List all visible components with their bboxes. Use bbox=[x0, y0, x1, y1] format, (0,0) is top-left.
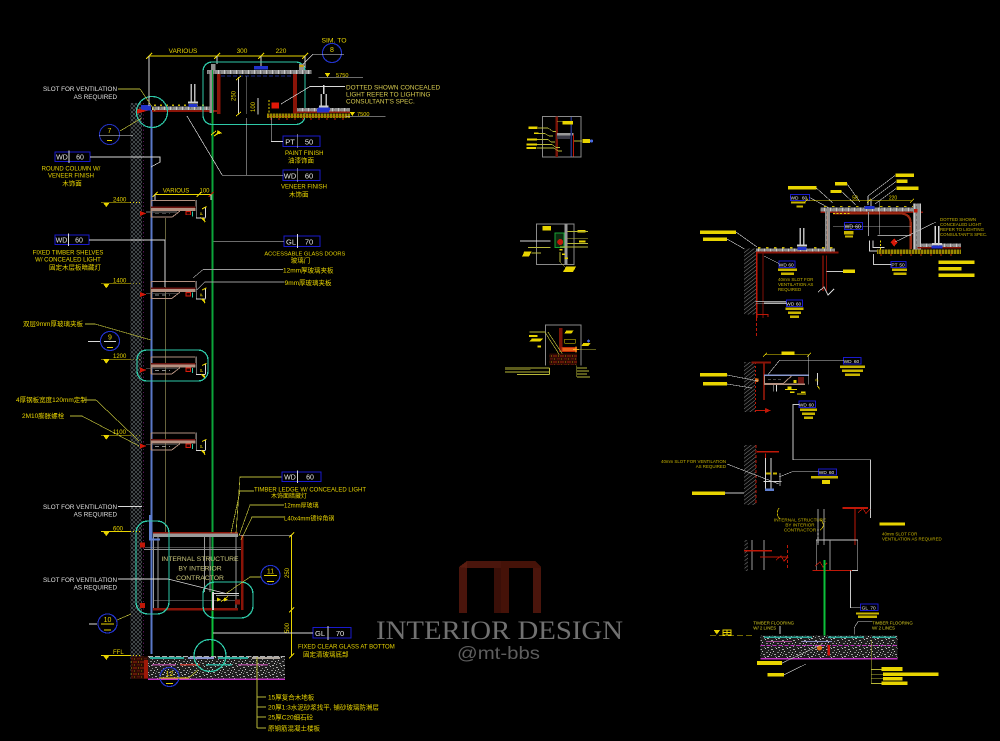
svg-text:70: 70 bbox=[336, 629, 344, 638]
svg-text:VENEER FINISH: VENEER FINISH bbox=[48, 174, 94, 180]
svg-text:220: 220 bbox=[276, 48, 287, 55]
svg-text:W/ 2 LINES: W/ 2 LINES bbox=[872, 626, 895, 631]
svg-text:WD: WD bbox=[284, 475, 296, 482]
svg-text:P: P bbox=[815, 379, 820, 382]
svg-text:木饰面: 木饰面 bbox=[62, 179, 82, 188]
svg-text:60: 60 bbox=[829, 470, 835, 476]
svg-text:WD: WD bbox=[799, 402, 808, 408]
svg-text:油漆饰面: 油漆饰面 bbox=[288, 156, 315, 165]
svg-text:2400: 2400 bbox=[113, 197, 127, 203]
svg-text:600: 600 bbox=[113, 526, 124, 532]
svg-text:70: 70 bbox=[305, 238, 313, 247]
svg-text:WD: WD bbox=[844, 359, 853, 365]
svg-text:500: 500 bbox=[285, 622, 291, 633]
svg-text:木饰面: 木饰面 bbox=[289, 190, 309, 199]
svg-text:12mm厚玻璃: 12mm厚玻璃 bbox=[284, 502, 319, 510]
svg-text:70: 70 bbox=[870, 606, 876, 612]
svg-text:GL: GL bbox=[862, 606, 869, 612]
svg-text:SLOT FOR VENTILATION: SLOT FOR VENTILATION bbox=[43, 86, 117, 93]
svg-text:4厚钢板宽度120mm定制: 4厚钢板宽度120mm定制 bbox=[16, 395, 87, 404]
svg-text:AS REQUIRED: AS REQUIRED bbox=[696, 464, 726, 469]
svg-text:60: 60 bbox=[788, 262, 794, 268]
svg-text:WD: WD bbox=[819, 470, 828, 476]
svg-text:固定木层板暗藏灯: 固定木层板暗藏灯 bbox=[49, 263, 102, 272]
svg-text:PAINT FINISH: PAINT FINISH bbox=[285, 151, 323, 157]
svg-text:VENTILATION AS REQUIRED: VENTILATION AS REQUIRED bbox=[882, 537, 942, 542]
svg-text:BY INTERIOR: BY INTERIOR bbox=[178, 566, 221, 573]
svg-text:WD: WD bbox=[779, 262, 788, 268]
svg-text:AS REQUIRED: AS REQUIRED bbox=[74, 94, 118, 101]
svg-text:AS REQUIRED: AS REQUIRED bbox=[74, 512, 118, 519]
svg-text:WD: WD bbox=[56, 155, 68, 162]
svg-text:DOTTED SHOWN CONCEALED: DOTTED SHOWN CONCEALED bbox=[346, 85, 440, 92]
svg-text:300: 300 bbox=[237, 48, 248, 55]
svg-text:TIMBER LEDGE W/ CONCEALED LIGH: TIMBER LEDGE W/ CONCEALED LIGHT bbox=[254, 488, 366, 494]
svg-text:WD: WD bbox=[791, 196, 800, 202]
svg-text:双层9mm厚玻璃夹板: 双层9mm厚玻璃夹板 bbox=[23, 319, 83, 328]
svg-text:PT: PT bbox=[891, 263, 897, 269]
svg-text:50: 50 bbox=[899, 263, 905, 269]
svg-text:25厚C20细石砼: 25厚C20细石砼 bbox=[268, 713, 314, 722]
svg-text:100: 100 bbox=[251, 101, 257, 112]
svg-text:W/ CONCEALED LIGHT: W/ CONCEALED LIGHT bbox=[35, 258, 101, 264]
svg-text:AS REQUIRED: AS REQUIRED bbox=[74, 585, 118, 592]
svg-text:PT: PT bbox=[285, 138, 295, 147]
svg-text:9mm厚玻璃夹板: 9mm厚玻璃夹板 bbox=[285, 278, 332, 287]
svg-text:CONSULTANT'S SPEC.: CONSULTANT'S SPEC. bbox=[346, 99, 415, 106]
svg-text:1400: 1400 bbox=[113, 279, 127, 285]
svg-text:CONTRACTOR: CONTRACTOR bbox=[784, 528, 817, 533]
svg-text:REQUIRED: REQUIRED bbox=[778, 287, 801, 292]
svg-text:FIXED CLEAR GLASS AT BOTTOM: FIXED CLEAR GLASS AT BOTTOM bbox=[298, 645, 395, 651]
svg-text:60: 60 bbox=[76, 155, 84, 162]
svg-text:固定清玻璃底部: 固定清玻璃底部 bbox=[303, 650, 349, 659]
svg-text:60: 60 bbox=[809, 402, 815, 408]
svg-text:220: 220 bbox=[889, 196, 898, 202]
svg-text:100: 100 bbox=[199, 188, 210, 194]
svg-text:8: 8 bbox=[330, 47, 334, 54]
svg-text:15厚复合木地板: 15厚复合木地板 bbox=[268, 693, 315, 702]
svg-text:9: 9 bbox=[108, 335, 112, 342]
svg-text:原钢筋混凝土楼板: 原钢筋混凝土楼板 bbox=[268, 724, 321, 733]
svg-text:WD: WD bbox=[284, 172, 297, 181]
svg-text:60: 60 bbox=[855, 225, 861, 231]
svg-text:WD: WD bbox=[786, 301, 795, 307]
svg-text:GL: GL bbox=[286, 238, 296, 247]
svg-text:CONSULTANT'S SPEC.: CONSULTANT'S SPEC. bbox=[940, 232, 987, 237]
svg-text:250: 250 bbox=[232, 90, 238, 101]
svg-text:LIGHT REFER TO LIGHTING: LIGHT REFER TO LIGHTING bbox=[346, 92, 431, 99]
svg-text:7: 7 bbox=[108, 128, 112, 135]
svg-text:FFL: FFL bbox=[113, 650, 124, 656]
svg-text:1200: 1200 bbox=[113, 354, 127, 360]
svg-text:VARIOUS: VARIOUS bbox=[163, 188, 190, 194]
svg-text:60: 60 bbox=[75, 238, 83, 245]
svg-text:SLOT FOR VENTILATION: SLOT FOR VENTILATION bbox=[43, 504, 117, 511]
svg-text:10: 10 bbox=[104, 617, 112, 624]
svg-text:ACCESSABLE GLASS DOORS: ACCESSABLE GLASS DOORS bbox=[264, 251, 345, 257]
svg-text:玻璃门: 玻璃门 bbox=[291, 256, 311, 265]
svg-text:INTERIOR DESIGN: INTERIOR DESIGN bbox=[376, 616, 623, 645]
svg-text:VARIOUS: VARIOUS bbox=[169, 48, 198, 55]
svg-text:60: 60 bbox=[305, 172, 313, 181]
svg-text:INTERNAL STRUCTURE: INTERNAL STRUCTURE bbox=[161, 556, 239, 563]
svg-text:50: 50 bbox=[852, 196, 858, 202]
svg-text:WD: WD bbox=[56, 238, 68, 245]
svg-text:12mm厚玻璃夹板: 12mm厚玻璃夹板 bbox=[283, 266, 334, 275]
svg-text:VENEER FINISH: VENEER FINISH bbox=[281, 185, 327, 191]
svg-text:FIXED TIMBER SHELVES: FIXED TIMBER SHELVES bbox=[33, 251, 104, 257]
svg-text:CONTRACTOR: CONTRACTOR bbox=[176, 575, 224, 582]
svg-text:60: 60 bbox=[796, 301, 802, 307]
svg-text:11: 11 bbox=[267, 569, 274, 576]
svg-text:60: 60 bbox=[306, 475, 314, 482]
svg-text:12: 12 bbox=[166, 671, 174, 678]
svg-text:ROUND COLUMN W/: ROUND COLUMN W/ bbox=[42, 167, 101, 173]
svg-text:2M10膨胀螺栓: 2M10膨胀螺栓 bbox=[22, 411, 65, 420]
svg-text:GL: GL bbox=[315, 629, 325, 638]
svg-text:50: 50 bbox=[305, 138, 313, 147]
svg-text:@mt-bbs: @mt-bbs bbox=[457, 643, 540, 663]
svg-text:SLOT FOR VENTILATION: SLOT FOR VENTILATION bbox=[43, 577, 117, 584]
svg-text:60: 60 bbox=[854, 359, 860, 365]
svg-text:W/ 2 LINES: W/ 2 LINES bbox=[753, 626, 776, 631]
svg-text:木饰面暗藏灯: 木饰面暗藏灯 bbox=[271, 492, 307, 500]
svg-text:250: 250 bbox=[285, 567, 291, 578]
svg-text:20厚1:3水泥砂浆找平, 铺砂玻璃防潮层: 20厚1:3水泥砂浆找平, 铺砂玻璃防潮层 bbox=[268, 703, 379, 712]
svg-text:L40x4mm镀锌角钢: L40x4mm镀锌角钢 bbox=[284, 515, 334, 523]
svg-text:WD: WD bbox=[845, 225, 854, 231]
